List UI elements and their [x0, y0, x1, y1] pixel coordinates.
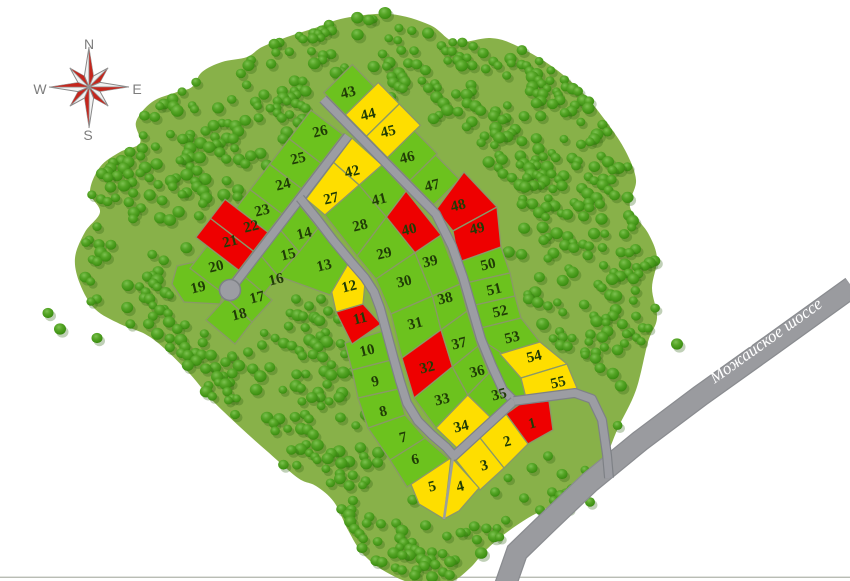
- svg-text:E: E: [132, 81, 141, 97]
- svg-text:N: N: [84, 36, 94, 52]
- svg-text:S: S: [83, 127, 92, 143]
- svg-text:W: W: [33, 81, 47, 97]
